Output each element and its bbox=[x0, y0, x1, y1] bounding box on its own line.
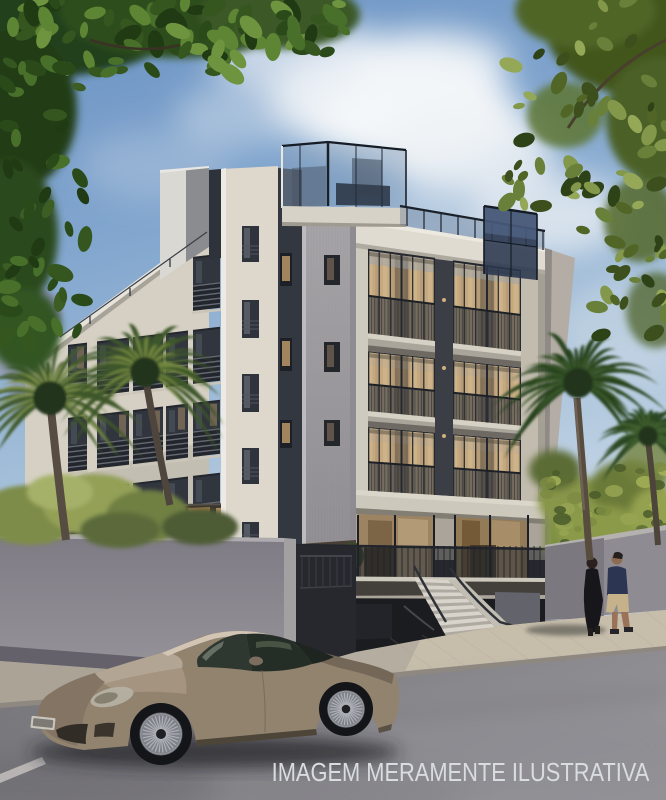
svg-text:IMAGEM MERAMENTE ILUSTRATIVA: IMAGEM MERAMENTE ILUSTRATIVA bbox=[272, 758, 650, 787]
